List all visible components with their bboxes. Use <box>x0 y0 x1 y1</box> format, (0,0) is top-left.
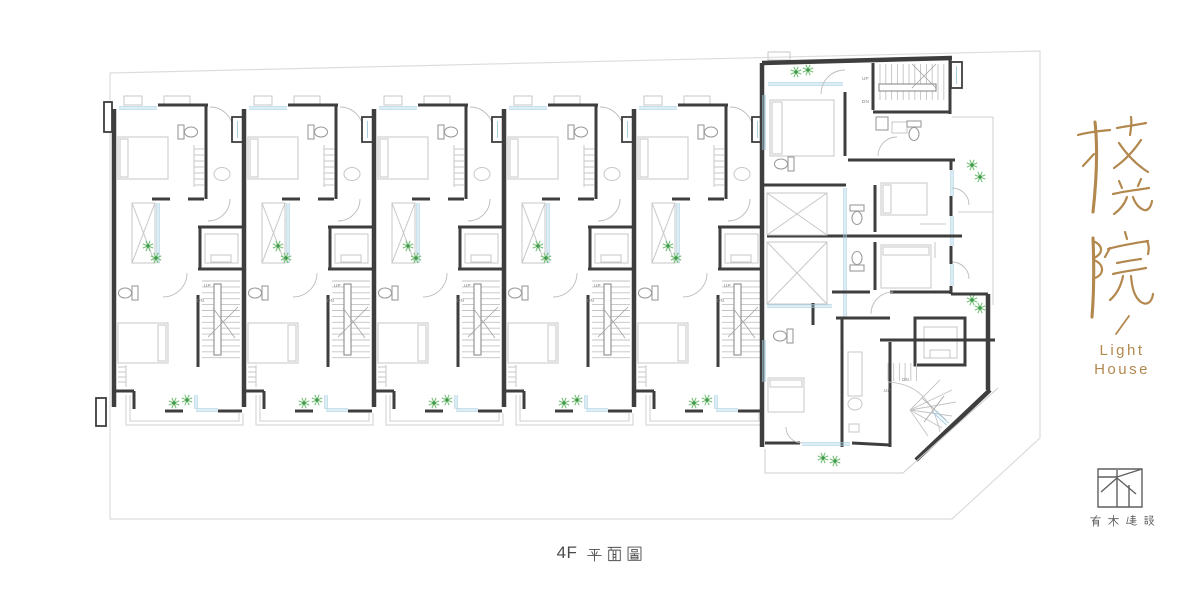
plant-icon <box>182 395 192 405</box>
svg-text:UP: UP <box>204 283 211 288</box>
toilet-icon <box>509 286 529 300</box>
unit-3: UPDN <box>372 96 503 425</box>
cjk-char: 面 <box>606 545 623 562</box>
plant-icon <box>671 253 681 263</box>
toilet-icon <box>249 286 269 300</box>
plant-icon <box>689 398 699 408</box>
unit-1: UPDN <box>112 96 243 425</box>
plant-icon <box>299 398 309 408</box>
cjk-char: 建 <box>1125 514 1138 527</box>
unit-2: UPDN <box>242 96 373 425</box>
cjk-char: 平 <box>586 545 603 562</box>
toilet-icon <box>774 329 794 343</box>
brand-divider-slash <box>1116 316 1129 334</box>
plant-icon <box>312 395 322 405</box>
brand-name-line1: Light <box>1074 341 1170 360</box>
plant-icon <box>830 456 840 466</box>
svg-text:DN: DN <box>587 298 594 303</box>
brand-calligraphy: 枝光院 <box>1070 110 1158 338</box>
plant-icon <box>818 453 828 463</box>
plant-icon <box>281 253 291 263</box>
toilet-icon <box>698 125 718 139</box>
svg-text:DN: DN <box>197 298 204 303</box>
plant-icon <box>403 241 413 251</box>
plant-icon <box>541 253 551 263</box>
toilet-icon <box>850 205 864 225</box>
toilet-icon <box>775 157 795 171</box>
plant-icon <box>442 395 452 405</box>
plant-icon <box>429 398 439 408</box>
svg-text:DN: DN <box>862 99 869 104</box>
svg-text:UP: UP <box>862 76 869 81</box>
plant-icon <box>967 295 977 305</box>
svg-text:UP: UP <box>334 283 341 288</box>
cjk-char: 有 <box>1089 514 1102 527</box>
unit-5: UPDN <box>632 96 763 425</box>
svg-text:DN: DN <box>457 298 464 303</box>
plant-icon <box>559 398 569 408</box>
toilet-icon <box>438 125 458 139</box>
toilet-icon <box>119 286 139 300</box>
plant-icon <box>791 67 801 77</box>
svg-text:UP: UP <box>724 283 731 288</box>
plant-icon <box>151 253 161 263</box>
svg-text:UP: UP <box>464 283 471 288</box>
plant-icon <box>975 172 985 182</box>
toilet-icon <box>907 121 921 141</box>
company-name: 有木建設 <box>1082 514 1162 527</box>
plant-icon <box>572 395 582 405</box>
floor-plan-sheet: UPDNUPDNUPDNUPDNUPDNUPDNUPDN 枝光院 Light H… <box>0 0 1200 598</box>
brand-name-english: Light House <box>1074 341 1170 379</box>
toilet-icon <box>379 286 399 300</box>
plant-icon <box>967 160 977 170</box>
plant-icon <box>143 241 153 251</box>
plan-title-cjk: 平面圖 <box>586 545 643 562</box>
cjk-char: 木 <box>1107 514 1120 527</box>
svg-text:DN: DN <box>327 298 334 303</box>
plan-title-label: 4F 平面圖 <box>0 543 1200 563</box>
toilet-icon <box>308 125 328 139</box>
brand-name-line2: House <box>1074 360 1170 379</box>
plant-icon <box>411 253 421 263</box>
cjk-char: 圖 <box>626 545 643 562</box>
svg-text:UP: UP <box>594 283 601 288</box>
floor-number: 4F <box>557 543 578 563</box>
end-unit: UPDNUPDN <box>762 52 998 473</box>
toilet-icon <box>178 125 198 139</box>
plant-icon <box>533 241 543 251</box>
unit-4: UPDN <box>502 96 633 425</box>
plant-icon <box>803 65 813 75</box>
plant-icon <box>975 303 985 313</box>
svg-text:DN: DN <box>902 377 909 382</box>
plant-icon <box>273 241 283 251</box>
company-logo-icon: 有木建設 <box>1096 466 1144 510</box>
toilet-icon <box>850 252 864 272</box>
svg-text:DN: DN <box>717 298 724 303</box>
svg-text:UP: UP <box>884 388 891 393</box>
toilet-icon <box>639 286 659 300</box>
plant-icon <box>702 395 712 405</box>
plant-icon <box>663 241 673 251</box>
floor-plan-drawing: UPDNUPDNUPDNUPDNUPDNUPDNUPDN <box>0 0 1200 598</box>
toilet-icon <box>568 125 588 139</box>
cjk-char: 設 <box>1143 514 1156 527</box>
plant-icon <box>169 398 179 408</box>
